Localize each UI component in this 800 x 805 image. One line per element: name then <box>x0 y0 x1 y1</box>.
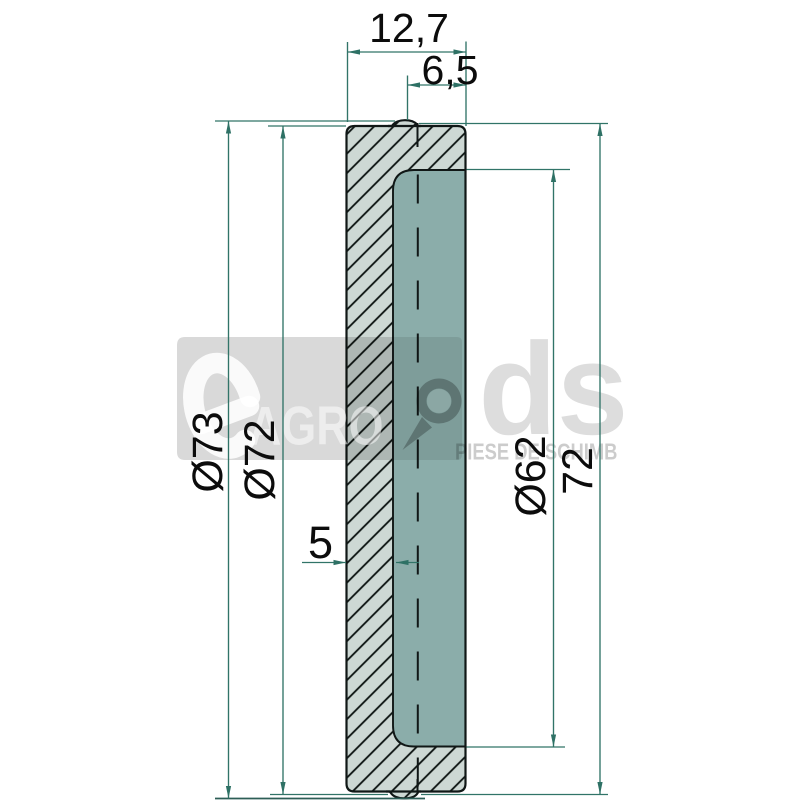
svg-text:Ø62: Ø62 <box>507 435 555 516</box>
svg-text:5: 5 <box>308 517 333 568</box>
svg-text:Ø72: Ø72 <box>236 419 284 500</box>
svg-text:6,5: 6,5 <box>422 47 479 93</box>
svg-text:Ø73: Ø73 <box>184 411 232 492</box>
svg-text:12,7: 12,7 <box>369 5 449 51</box>
svg-text:72: 72 <box>554 447 602 495</box>
